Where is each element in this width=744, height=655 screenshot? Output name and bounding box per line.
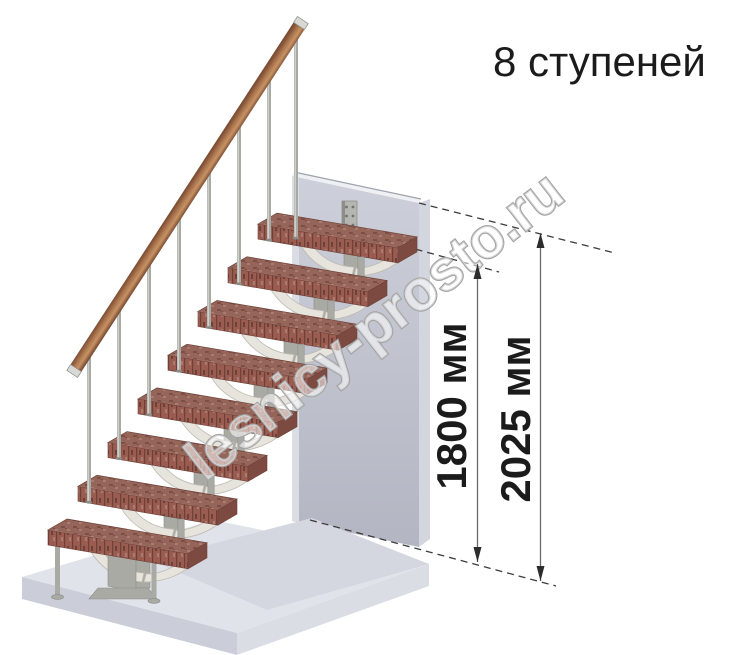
- spine-base-plate: [89, 588, 157, 599]
- baluster-step-5-collar: [176, 370, 183, 373]
- bracket-hole: [352, 215, 355, 218]
- bracket-hole: [345, 206, 348, 209]
- staircase-diagram: lesnicy-prosto.ru 1800 мм 2025 мм 8 ступ…: [0, 0, 744, 655]
- bracket-hole: [345, 215, 348, 218]
- baluster-step-3-collar: [116, 457, 123, 460]
- rail-end-post-collar: [293, 237, 300, 240]
- baluster-step-4-collar: [146, 414, 153, 417]
- dimension-2025-label: 2025 мм: [492, 335, 539, 502]
- leg-foot: [52, 595, 64, 600]
- baluster-step-7-collar: [236, 282, 243, 285]
- dimension-1800-label: 1800 мм: [428, 322, 475, 489]
- page-title: 8 ступеней: [493, 38, 706, 85]
- baluster-step-8-collar: [266, 239, 273, 242]
- staircase-illustration: lesnicy-prosto.ru 1800 мм 2025 мм 8 ступ…: [0, 0, 744, 655]
- bracket-hole: [352, 206, 355, 209]
- baluster-step-6-collar: [206, 326, 213, 329]
- baluster-step-2-collar: [86, 501, 93, 504]
- leg-foot: [148, 599, 160, 604]
